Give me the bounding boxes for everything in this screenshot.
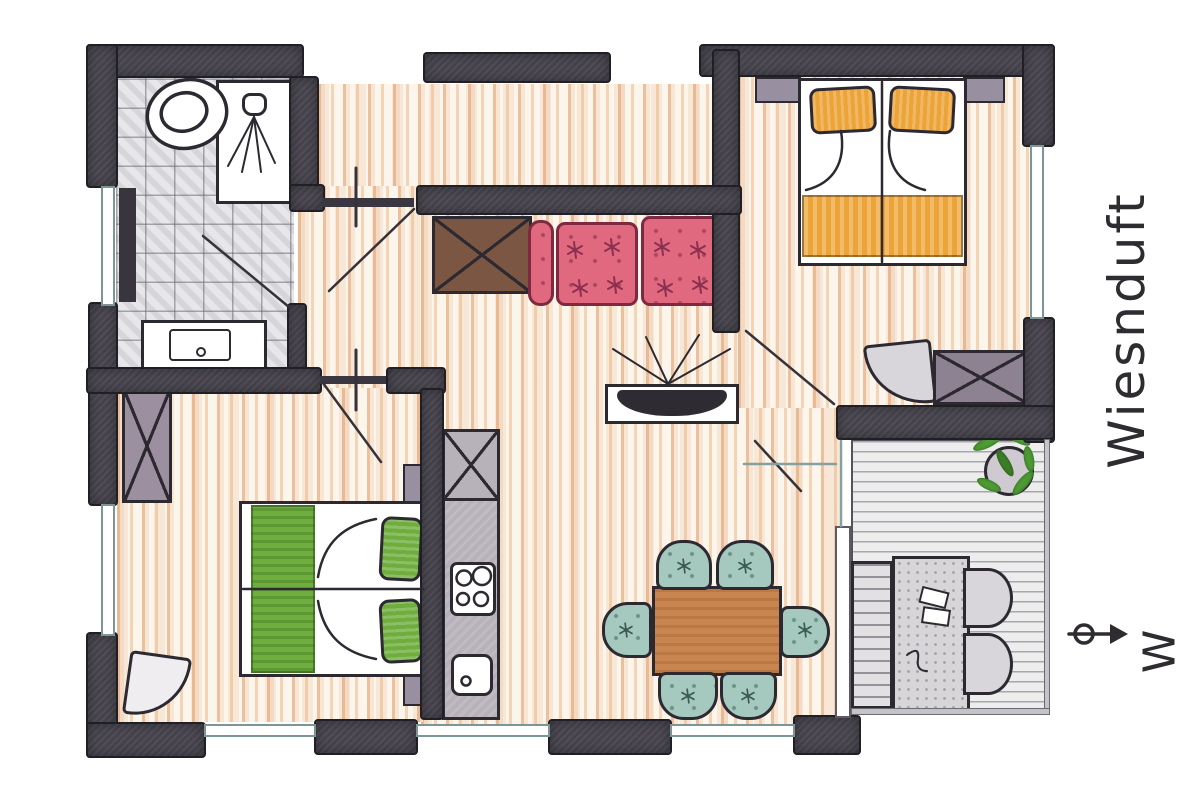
- balcony-chair-bottom: [963, 633, 1013, 695]
- balcony-railing-right: [1044, 439, 1050, 715]
- sofa-armrest: [528, 220, 554, 306]
- window-dining-south: [670, 724, 795, 737]
- kitchen-tall-cabinet: [442, 429, 500, 501]
- dining-chair-right: [780, 606, 830, 658]
- compass: W: [1066, 612, 1186, 692]
- window-bedroom-top-right: [1030, 145, 1044, 319]
- window-kitchen-south: [416, 724, 550, 737]
- shower-head-icon: [242, 93, 267, 116]
- wall-bottom-left-corner: [86, 722, 206, 758]
- blanket-b1: [802, 195, 963, 257]
- wall-bathroom-right-pier: [287, 303, 307, 373]
- window-living-balcony: [835, 526, 851, 718]
- wardrobe-living: [432, 216, 532, 294]
- pillow-b1-left: [809, 85, 877, 134]
- blanket-b2: [251, 505, 315, 673]
- nightstand-b1-left: [755, 77, 801, 103]
- floor-plan: Wiesnduft W: [0, 0, 1200, 800]
- balcony-railing-bottom: [851, 708, 1050, 715]
- sofa: [528, 214, 722, 308]
- wall-bottom-pier-2: [314, 719, 418, 755]
- dining-chair-bottom-2: [720, 672, 777, 720]
- wall-top-left: [86, 44, 304, 78]
- dining-chair-left: [602, 602, 652, 658]
- dining-chair-top-1: [656, 540, 712, 590]
- wall-right-upper: [1022, 44, 1055, 147]
- apartment-title-text: Wiesnduft: [1098, 191, 1156, 469]
- wall-interior-hall-living: [416, 185, 742, 215]
- wall-kitchen-bedroom: [420, 388, 444, 720]
- wall-left-middle-pier: [88, 302, 118, 506]
- wall-bathroom-bedroom-divider: [86, 367, 322, 394]
- wall-top-right: [699, 44, 1055, 77]
- floor-entry-hall: [318, 84, 714, 188]
- bathroom-radiator: [119, 188, 136, 302]
- north-arrow-icon: [1066, 612, 1134, 656]
- pillow-b2-bottom: [378, 598, 423, 664]
- wall-bathroom-right: [289, 76, 319, 188]
- wardrobe-b1: [933, 350, 1028, 405]
- apartment-title: Wiesnduft: [1062, 140, 1192, 520]
- dining-table: [652, 586, 782, 676]
- nightstand-b1-right: [963, 77, 1005, 103]
- window-bedroom-bottom-left: [101, 504, 115, 636]
- wall-left-upper: [86, 44, 118, 188]
- dining-chair-bottom-1: [658, 672, 718, 720]
- pillow-b1-right: [888, 85, 956, 134]
- window-bedroom-bottom-south: [204, 724, 316, 737]
- pillow-b2-top: [378, 516, 423, 582]
- kitchen-sink: [451, 654, 493, 696]
- wardrobe-b2: [122, 389, 172, 503]
- wall-top-entry-segment: [423, 52, 611, 83]
- bed-bottom-left: [239, 501, 427, 677]
- sofa-cushion-right: [641, 216, 722, 306]
- window-bathroom-left: [101, 186, 115, 306]
- tv-icon: [617, 390, 727, 416]
- dining-chair-top-2: [716, 540, 774, 590]
- bed-top-right: [798, 78, 967, 266]
- compass-direction-letter: W: [1134, 630, 1185, 674]
- bathroom-vanity: [141, 320, 267, 370]
- balcony-chair-top: [963, 568, 1013, 628]
- balcony-table: [892, 556, 970, 712]
- wall-bottom-pier-4: [793, 715, 861, 755]
- wall-bottom-pier-3: [548, 719, 672, 755]
- stove: [450, 562, 496, 616]
- balcony-bench: [851, 561, 893, 709]
- tv-console: [605, 384, 739, 424]
- sofa-cushion-left: [556, 222, 638, 306]
- wall-bathroom-right-foot: [289, 184, 325, 212]
- wall-bedroom-top-bottom: [836, 405, 1055, 440]
